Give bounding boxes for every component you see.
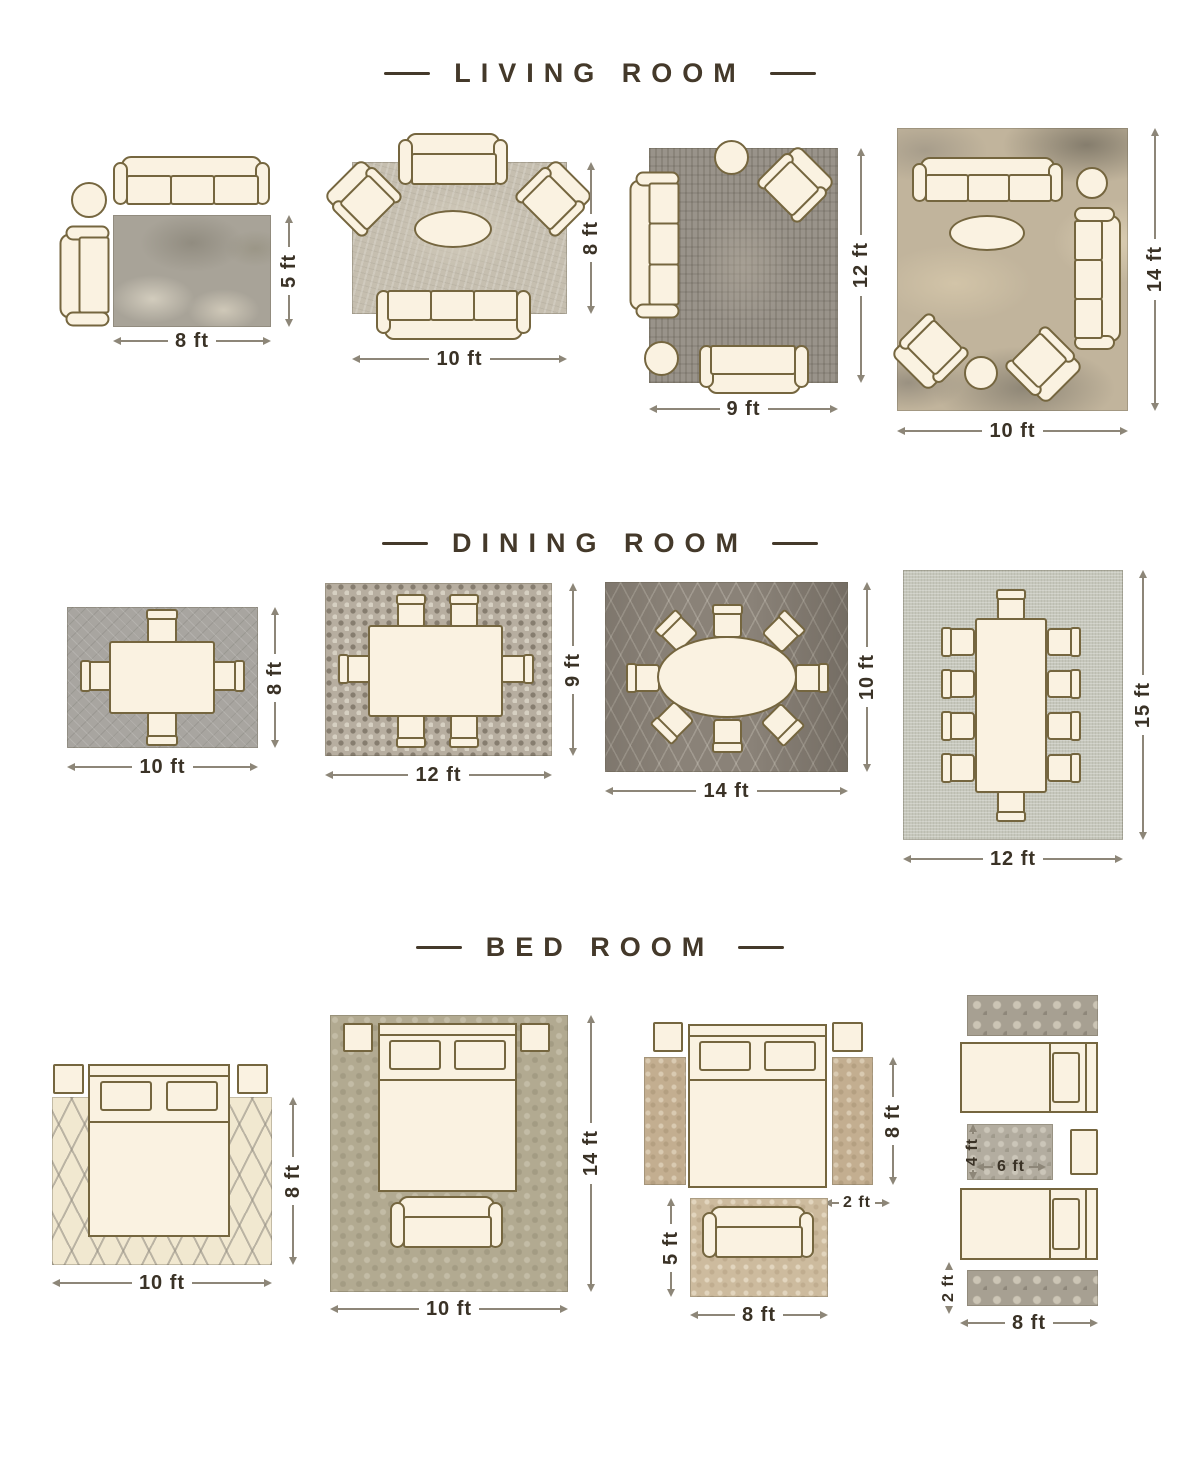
dining-chair	[944, 754, 975, 782]
round-side-table	[644, 341, 679, 376]
dimension-height: 8 ft	[282, 1097, 304, 1265]
bench	[390, 1196, 503, 1248]
dimension-width: 10 ft	[897, 420, 1128, 442]
dimension-label: 8 ft	[264, 654, 287, 702]
round-side-table	[714, 140, 749, 175]
sofa	[376, 290, 531, 340]
runner-rug	[967, 1270, 1098, 1306]
twin-bed	[960, 1042, 1098, 1113]
pillow	[389, 1040, 440, 1070]
dimension-label: 10 ft	[982, 420, 1042, 443]
dimension-width: 10 ft	[52, 1272, 272, 1294]
section-title-bed-room: BED ROOM	[0, 932, 1200, 963]
dimension-height: 14 ft	[580, 1015, 602, 1292]
dimension-height: 10 ft	[856, 582, 878, 772]
dimension-width: 10 ft	[67, 756, 258, 778]
dining-chair	[450, 597, 478, 628]
loveseat	[60, 226, 110, 327]
dimension-label: 2 ft	[839, 1194, 875, 1212]
headboard	[380, 1034, 515, 1036]
runner-rug	[644, 1057, 686, 1185]
runner-rug	[967, 995, 1098, 1036]
dimension-label: 14 ft	[1144, 239, 1167, 299]
dining-chair	[1047, 628, 1078, 656]
pillow	[1052, 1198, 1080, 1250]
dimension-width: 14 ft	[605, 780, 848, 802]
dimension-label: 8 ft	[882, 1097, 905, 1145]
pillow	[1052, 1052, 1080, 1103]
round-side-table	[1076, 167, 1108, 199]
pillow	[764, 1041, 815, 1071]
dimension-label: 9 ft	[562, 646, 585, 694]
dimension-label: 8 ft	[580, 214, 603, 262]
runner-rug	[832, 1057, 873, 1185]
dimension-label: 10 ft	[419, 1298, 479, 1321]
section-heading: LIVING ROOM	[454, 58, 746, 89]
dining-chair	[1047, 754, 1078, 782]
section-heading: BED ROOM	[486, 932, 715, 963]
dimension-label: 8 ft	[1005, 1312, 1053, 1335]
dining-table	[975, 618, 1047, 793]
dimension-runner-height: 8 ft	[882, 1057, 904, 1185]
title-dash-left	[416, 946, 462, 949]
headboard	[690, 1035, 825, 1037]
nightstand	[520, 1023, 550, 1052]
fold-line	[1049, 1043, 1051, 1112]
sofa	[912, 157, 1063, 202]
dimension-label: 12 ft	[983, 848, 1043, 871]
headboard	[90, 1075, 228, 1077]
oval-coffee-table	[414, 210, 492, 248]
dimension-height: 5 ft	[278, 215, 300, 327]
pillow	[454, 1040, 505, 1070]
dimension-label: 14 ft	[696, 780, 756, 803]
dining-chair	[713, 607, 742, 638]
dimension-label: 10 ft	[132, 1272, 192, 1295]
dimension-width: 8 ft	[113, 330, 271, 352]
dining-chair	[397, 597, 425, 628]
dining-table	[109, 641, 215, 714]
rug-size-guide: LIVING ROOM 5 ft 8 ft 8 ft 10 ft	[0, 0, 1200, 1467]
pillow	[100, 1081, 152, 1111]
dimension-height: 14 ft	[1144, 128, 1166, 411]
dimension-label: 5 ft	[660, 1224, 683, 1272]
dimension-label: 10 ft	[429, 348, 489, 371]
headboard	[1085, 1044, 1087, 1111]
dining-chair	[944, 712, 975, 740]
dimension-width: 9 ft	[649, 398, 838, 420]
fold-line	[689, 1079, 826, 1081]
dimension-label: 10 ft	[856, 647, 879, 707]
dimension-label: 8 ft	[168, 330, 216, 353]
dimension-label: 8 ft	[735, 1304, 783, 1327]
fold-line	[379, 1079, 516, 1081]
dining-chair	[795, 664, 826, 692]
dimension-width: 10 ft	[330, 1298, 568, 1320]
oval-dining-table	[657, 636, 797, 718]
nightstand	[832, 1022, 863, 1052]
dining-chair	[450, 714, 478, 745]
bed	[88, 1064, 230, 1237]
nightstand	[1070, 1129, 1098, 1175]
loveseat	[398, 133, 508, 185]
dimension-runner-width: 2 ft	[824, 1192, 890, 1214]
title-dash-left	[384, 72, 430, 75]
dimension-width: 10 ft	[352, 348, 567, 370]
oval-coffee-table	[949, 215, 1025, 251]
section-title-dining-room: DINING ROOM	[0, 528, 1200, 559]
dining-chair	[944, 628, 975, 656]
title-dash-right	[770, 72, 816, 75]
headboard	[1085, 1190, 1087, 1258]
dining-chair	[629, 664, 660, 692]
loveseat	[699, 345, 809, 394]
dining-chair	[147, 711, 177, 743]
dimension-height: 9 ft	[562, 583, 584, 756]
bed	[378, 1023, 517, 1192]
dimension-width: 12 ft	[325, 764, 552, 786]
dining-chair	[147, 612, 177, 644]
sofa	[1074, 207, 1121, 350]
dining-chair	[1047, 670, 1078, 698]
sofa	[630, 172, 680, 319]
living-rug-8x5	[113, 215, 271, 327]
dimension-middle-rug-width: 6 ft	[976, 1156, 1046, 1178]
pillow	[699, 1041, 750, 1071]
nightstand	[343, 1023, 373, 1052]
dining-chair	[1047, 712, 1078, 740]
section-title-living-room: LIVING ROOM	[0, 58, 1200, 89]
dimension-height: 12 ft	[850, 148, 872, 383]
pillow	[166, 1081, 218, 1111]
dining-chair	[997, 790, 1025, 819]
dining-chair	[944, 670, 975, 698]
title-dash-right	[738, 946, 784, 949]
dining-chair	[997, 592, 1025, 621]
dimension-label: 9 ft	[720, 398, 768, 421]
section-heading: DINING ROOM	[452, 528, 748, 559]
sofa	[113, 156, 270, 205]
dimension-height: 8 ft	[264, 607, 286, 748]
dimension-label: 2 ft	[940, 1270, 958, 1306]
dimension-height: 8 ft	[580, 162, 602, 314]
dining-chair	[713, 719, 742, 750]
dimension-height: 15 ft	[1132, 570, 1154, 840]
dimension-label: 5 ft	[278, 247, 301, 295]
loveseat	[702, 1206, 814, 1258]
dimension-label: 8 ft	[282, 1157, 305, 1205]
dimension-label: 12 ft	[408, 764, 468, 787]
twin-bed	[960, 1188, 1098, 1260]
round-side-table	[964, 356, 998, 390]
dining-table	[368, 625, 503, 717]
dimension-width: 12 ft	[903, 848, 1123, 870]
nightstand	[53, 1064, 84, 1094]
dimension-label: 10 ft	[132, 756, 192, 779]
dining-chair	[397, 714, 425, 745]
title-dash-left	[382, 542, 428, 545]
nightstand	[653, 1022, 683, 1052]
dimension-sofa-rug-width: 8 ft	[690, 1304, 828, 1326]
dimension-sofa-rug-height: 5 ft	[660, 1198, 682, 1297]
bed	[688, 1024, 827, 1188]
title-dash-right	[772, 542, 818, 545]
fold-line	[1049, 1189, 1051, 1259]
dimension-label: 15 ft	[1132, 675, 1155, 735]
dimension-label: 14 ft	[580, 1123, 603, 1183]
dimension-runner-width: 2 ft	[938, 1262, 960, 1306]
fold-line	[89, 1121, 229, 1123]
dining-chair	[500, 655, 531, 683]
dimension-label: 6 ft	[993, 1158, 1029, 1176]
dimension-width: 8 ft	[960, 1312, 1098, 1334]
dimension-label: 12 ft	[850, 235, 873, 295]
round-side-table	[71, 182, 107, 218]
nightstand	[237, 1064, 268, 1094]
